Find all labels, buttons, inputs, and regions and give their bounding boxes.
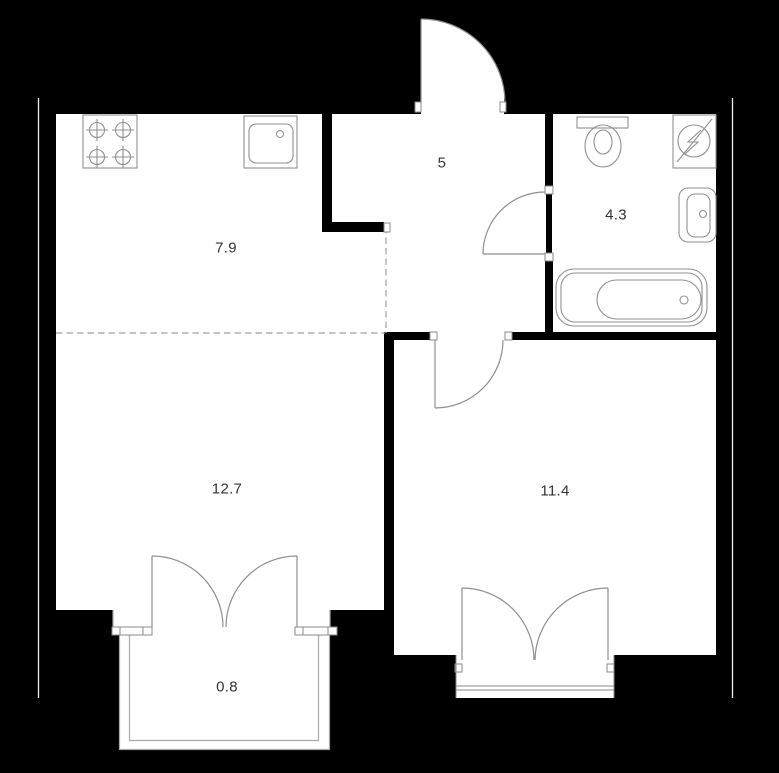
bedroom-area-label: 11.4	[540, 483, 569, 500]
living-bottom-wall-right	[330, 610, 394, 657]
floor-plan: 7.9 5 4.3 12.7 11.4 0.8	[0, 0, 779, 773]
bedroom-bottom-wall-left	[393, 655, 456, 698]
bathroom-area-label: 4.3	[605, 207, 627, 224]
living-bottom-wall-left	[38, 610, 113, 698]
entrance-jamb-right	[500, 102, 506, 112]
bathroom-floor	[552, 114, 716, 332]
hallway-bathroom-wall-lower	[545, 253, 553, 332]
floor-plan-drawing	[0, 0, 779, 773]
hallway-area-label: 5	[438, 155, 447, 172]
top-wall-left	[38, 98, 421, 114]
bathroom-jamb-bottom	[545, 253, 553, 261]
bathroom-bedroom-wall	[505, 332, 716, 340]
entrance-door-swing-area	[421, 19, 505, 114]
bedroom-jamb-left	[430, 332, 437, 340]
partition-end-cap	[384, 223, 390, 232]
right-outer-wall	[716, 112, 732, 698]
balcony-area-label: 0.8	[216, 679, 238, 696]
kitchen-hallway-wall-vertical	[322, 112, 332, 232]
top-wall-right	[504, 98, 732, 114]
bedroom-window-opening-floor	[456, 655, 614, 698]
entrance-jamb-left	[415, 102, 421, 112]
balcony-threshold-left	[112, 627, 152, 635]
balcony-threshold-right	[295, 627, 337, 635]
french-window-jamb-right	[607, 664, 614, 672]
kitchen-hallway-wall-horizontal	[322, 222, 384, 232]
living-room-area-label: 12.7	[212, 481, 242, 498]
bedroom-jamb-right	[505, 332, 512, 340]
hallway-bathroom-wall-upper	[545, 112, 553, 188]
bedroom-bottom-wall-right	[614, 655, 716, 698]
living-bedroom-wall	[384, 332, 394, 657]
kitchen-area-label: 7.9	[215, 240, 237, 257]
bathroom-jamb-top	[545, 186, 553, 194]
